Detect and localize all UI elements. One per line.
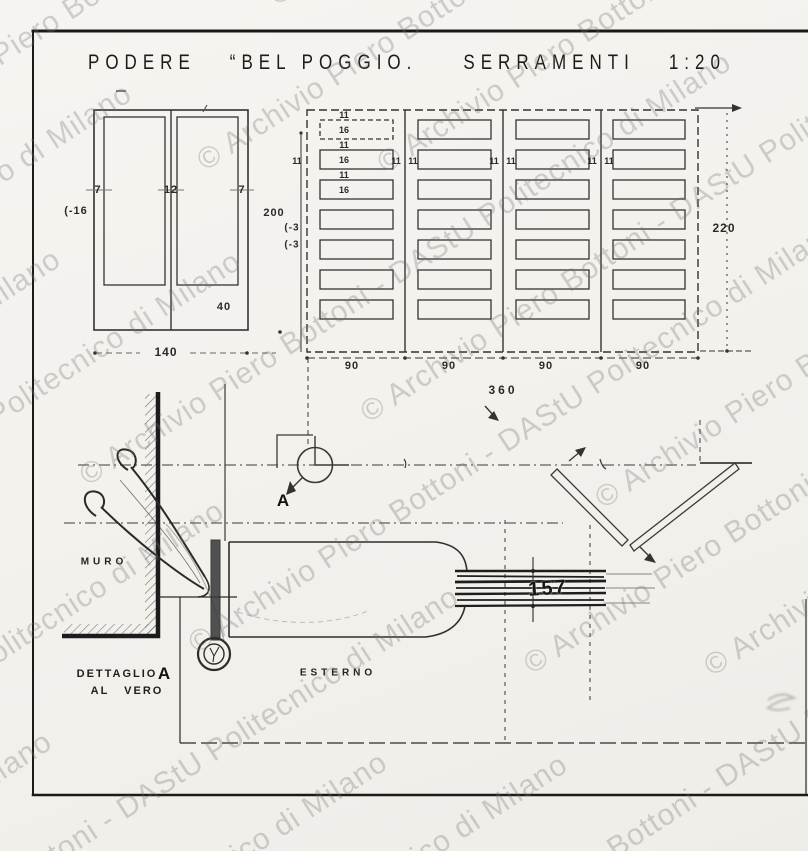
shutter-hdim-3: 11 (408, 156, 418, 166)
shutter-width-4: 90 (636, 360, 650, 372)
wall-label: MURO (81, 557, 128, 568)
scanned-drawing-sheet: PODERE “BEL POGGIO. SERRAMENTI 1:20 7 12… (0, 0, 808, 851)
shutter-hdim-2: 11 (391, 156, 401, 166)
detail-caption-word: DETTAGLIO (77, 668, 158, 680)
shutter-height-left: 200 (263, 207, 284, 219)
shutter-hdim-5: 11 (506, 156, 516, 166)
shutter-hdim-6: 11 (587, 156, 597, 166)
door-dim-bottom-rail: 40 (217, 301, 231, 313)
door-dim-stile-right: 7 (238, 184, 245, 196)
shutter-total-width: 360 (488, 383, 517, 397)
shutter-vdim-4: 16 (339, 155, 349, 165)
plan-callout-letter: A (277, 491, 289, 511)
shutter-vdim-5: 11 (339, 170, 349, 180)
door-dim-height-note: (-16 (64, 205, 88, 217)
shutter-vdim-1: 11 (339, 110, 349, 120)
leaf-dimension-157: 157 (528, 576, 569, 602)
shutter-height-right: 220 (712, 221, 735, 235)
shutter-hdim-7: 11 (604, 156, 614, 166)
shutter-width-1: 90 (345, 360, 359, 372)
shutter-vdim-6: 16 (339, 185, 349, 195)
shutter-width-3: 90 (539, 360, 553, 372)
shutter-hdim-4: 11 (489, 156, 499, 166)
shutter-vdim-3: 11 (339, 140, 349, 150)
detail-caption-line2: AL VERO (91, 685, 164, 697)
shutter-offset-1: (-3 (284, 223, 299, 234)
shutter-vdim-2: 16 (339, 125, 349, 135)
door-dim-mullion: 12 (164, 184, 178, 196)
detail-caption-letter: A (158, 664, 170, 684)
shutter-offset-2: (-3 (284, 240, 299, 251)
shutter-hdim-1: 11 (292, 156, 302, 166)
dimension-labels: 7 12 7 (-16 40 140 11 16 11 16 11 16 11 … (0, 0, 808, 851)
door-dim-stile-left: 7 (94, 184, 101, 196)
door-dim-width: 140 (154, 345, 177, 359)
shutter-width-2: 90 (442, 360, 456, 372)
exterior-label: ESTERNO (300, 668, 376, 679)
